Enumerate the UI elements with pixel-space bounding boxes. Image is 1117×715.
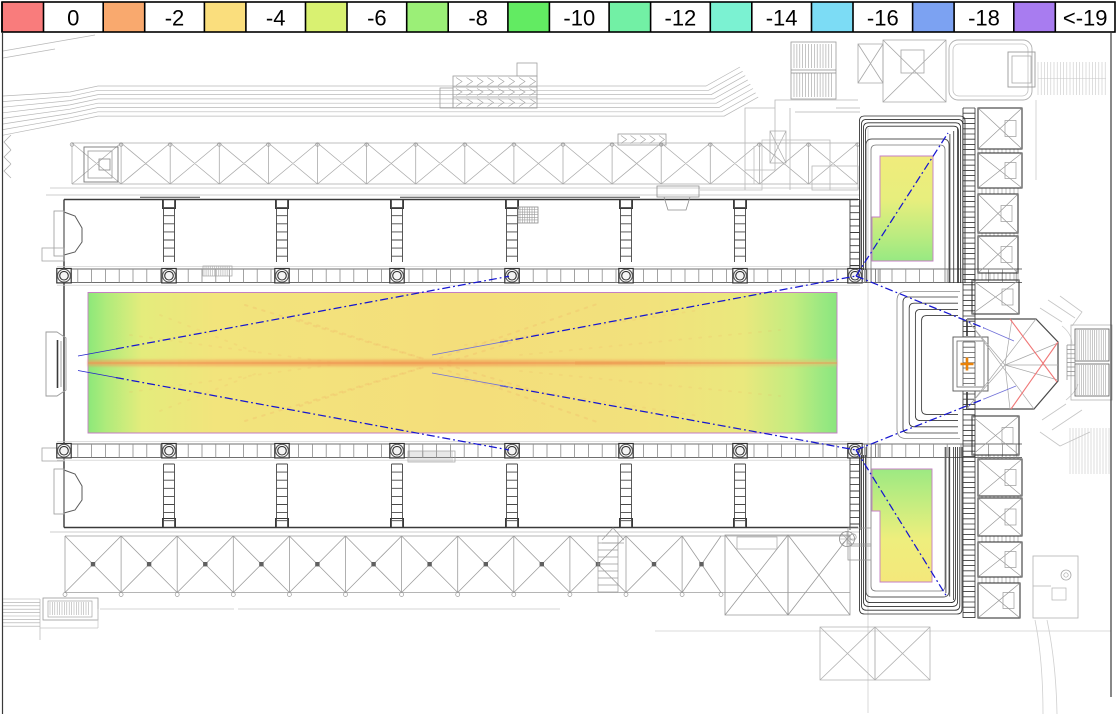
svg-text:-12: -12: [665, 6, 697, 31]
svg-text:0: 0: [67, 6, 79, 31]
svg-text:-8: -8: [468, 6, 488, 31]
svg-text:-6: -6: [367, 6, 387, 31]
svg-text:-18: -18: [968, 6, 1000, 31]
svg-text:-2: -2: [165, 6, 185, 31]
svg-text:-14: -14: [766, 6, 798, 31]
svg-text:-4: -4: [266, 6, 286, 31]
svg-text:-10: -10: [563, 6, 595, 31]
svg-text:<-19: <-19: [1063, 6, 1108, 31]
svg-text:-16: -16: [867, 6, 899, 31]
